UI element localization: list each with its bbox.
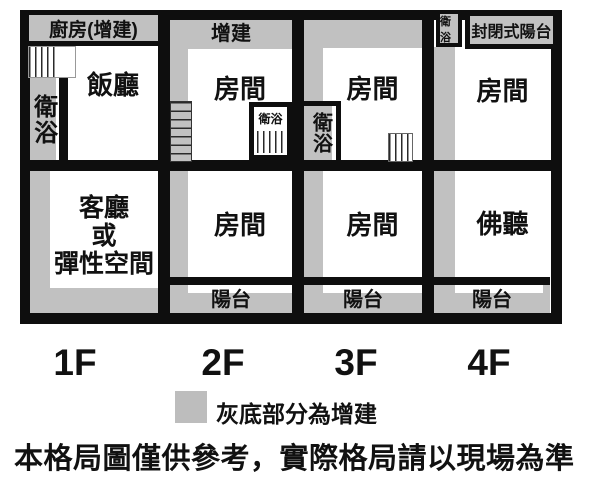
f1-living-label: 客廳 或 彈性空間 xyxy=(50,194,158,278)
wall-middle-horizontal xyxy=(20,160,562,171)
f1-kitchen-box: 廚房(增建) xyxy=(24,10,163,46)
f2-addition-label: 增建 xyxy=(170,20,292,48)
f3-room-upper-label: 房間 xyxy=(323,60,422,120)
legend-label: 灰底部分為增建 xyxy=(216,395,377,429)
floor-label-2f: 2F xyxy=(201,342,244,384)
f1-bathroom-label: 衛浴 xyxy=(30,82,56,158)
f4-enclosed-balcony-box: 封閉式陽台 xyxy=(465,11,558,49)
f4-gray-strip-upper xyxy=(434,47,455,160)
f2-balcony-label: 陽台 xyxy=(170,288,292,312)
f2-room-lower-label: 房間 xyxy=(188,196,292,256)
wall-f4-balcony-divider xyxy=(434,277,550,285)
disclaimer-text: 本格局圖僅供參考，實際格局請以現場為準 xyxy=(14,435,575,477)
wall-outer-bottom xyxy=(20,313,562,324)
f4-bathroom-box: 衛浴 xyxy=(436,10,462,47)
f4-room-upper-label: 房間 xyxy=(455,62,550,122)
floor-plan-image: 廚房(增建) 衛浴 飯廳 客廳 或 彈性空間 增建 房間 衛浴 房間 陽台 房間… xyxy=(0,0,604,480)
f1-living-line2: 或 xyxy=(91,222,116,250)
f1-stairs-hatch xyxy=(29,47,56,77)
f3-stairs-icon xyxy=(388,133,413,162)
f1-kitchen-label: 廚房(增建) xyxy=(49,15,138,42)
wall-f2-balcony-divider xyxy=(170,277,292,285)
floor-label-4f: 4F xyxy=(467,342,510,384)
f2-room-upper-label: 房間 xyxy=(188,60,292,120)
f4-enclosed-balcony-label: 封閉式陽台 xyxy=(471,18,551,42)
f3-balcony-label: 陽台 xyxy=(304,288,422,312)
f1-living-line1: 客廳 xyxy=(79,194,129,222)
floor-label-3f: 3F xyxy=(334,342,377,384)
f4-balcony-label: 陽台 xyxy=(434,288,550,312)
f4-bathroom-label: 衛浴 xyxy=(440,13,458,45)
f4-hall-label: 佛聽 xyxy=(455,195,550,255)
wall-f1-bathroom xyxy=(59,76,68,171)
f1-dining-label: 飯廳 xyxy=(68,56,158,116)
wall-f3-balcony-divider xyxy=(304,277,422,285)
f1-living-line3: 彈性空間 xyxy=(54,250,154,278)
f2-bathroom-stairs-icon xyxy=(257,131,284,153)
f3-room-lower-label: 房間 xyxy=(323,196,422,256)
floor-label-1f: 1F xyxy=(53,342,96,384)
legend-gray-swatch-icon xyxy=(175,391,207,423)
